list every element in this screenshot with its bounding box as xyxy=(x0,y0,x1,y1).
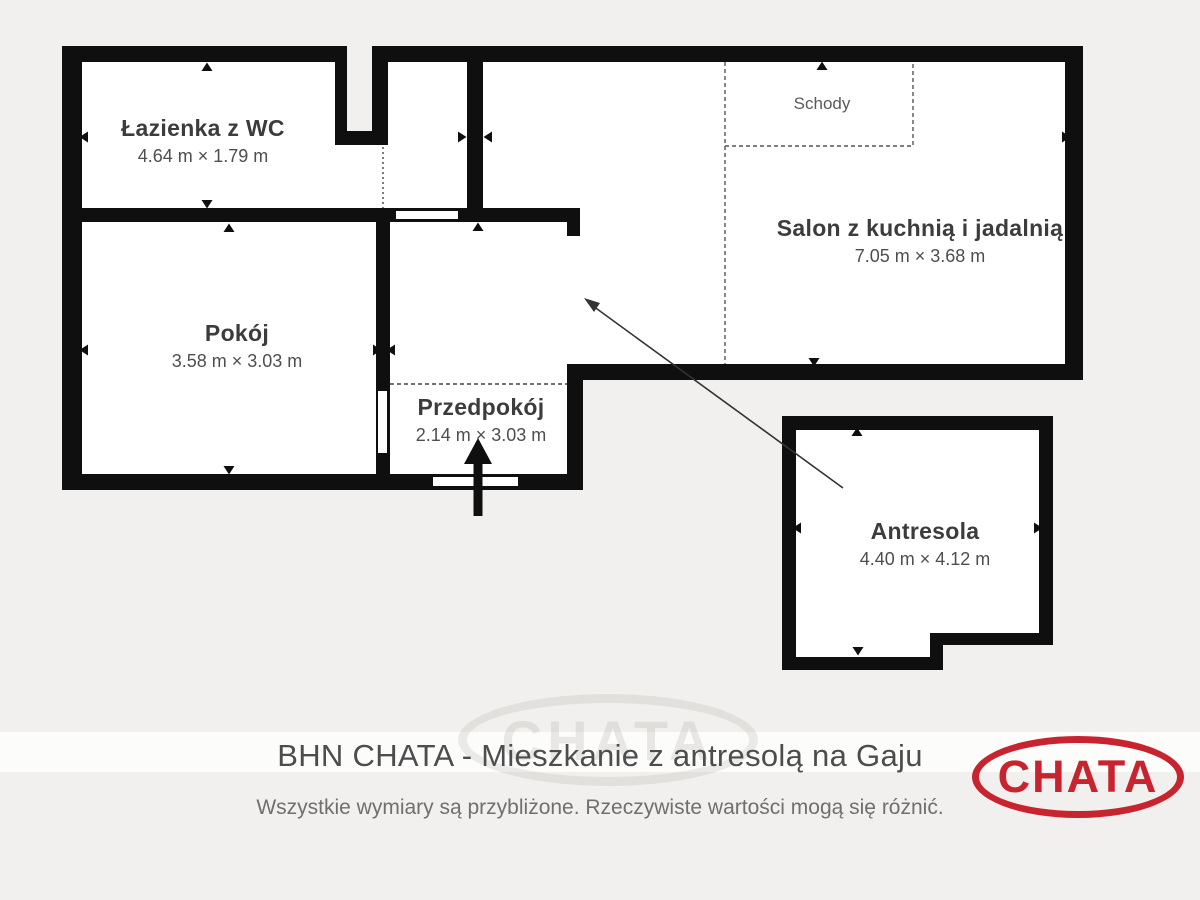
brand-logo: CHATA xyxy=(972,736,1184,818)
wall-antresola-top xyxy=(782,416,1053,430)
room-dims: 4.64 m × 1.79 m xyxy=(121,146,285,167)
door-entrance xyxy=(431,475,520,488)
room-label-przedpokoj: Przedpokój 2.14 m × 3.03 m xyxy=(416,394,547,446)
wall-top-left xyxy=(62,46,347,62)
wall-right xyxy=(1065,46,1083,380)
wall-corridor-stub xyxy=(567,208,580,236)
room-name: Pokój xyxy=(172,320,303,347)
room-name: Łazienka z WC xyxy=(121,115,285,142)
wall-left xyxy=(62,46,82,490)
room-dims: 4.40 m × 4.12 m xyxy=(860,549,991,570)
room-dims: 7.05 m × 3.68 m xyxy=(777,246,1063,267)
room-name: Salon z kuchnią i jadalnią xyxy=(777,215,1063,242)
door-lazienka xyxy=(394,209,460,221)
floor-plan-page: Łazienka z WC 4.64 m × 1.79 m Pokój 3.58… xyxy=(0,0,1200,900)
room-dims: 2.14 m × 3.03 m xyxy=(416,425,547,446)
room-label-lazienka: Łazienka z WC 4.64 m × 1.79 m xyxy=(121,115,285,167)
room-dims: 3.58 m × 3.03 m xyxy=(172,351,303,372)
door-pokoj xyxy=(376,389,389,455)
wall-antresola-right xyxy=(1039,416,1053,645)
wall-przedpokoj-right xyxy=(567,364,583,490)
room-name: Antresola xyxy=(860,518,991,545)
wall-antresola-bottom-right xyxy=(930,633,1053,645)
wall-salon-bottom xyxy=(567,364,1083,380)
niche-background xyxy=(347,46,372,136)
stairs-label: Schody xyxy=(794,94,851,114)
room-name: Przedpokój xyxy=(416,394,547,421)
wall-corridor-top xyxy=(483,208,580,222)
room-fill-corridor-pokoj xyxy=(74,208,583,490)
brand-logo-text: CHATA xyxy=(998,751,1159,803)
wall-antresola-left xyxy=(782,416,796,670)
wall-lazienka-salon-divider xyxy=(467,46,483,222)
room-label-antresola: Antresola 4.40 m × 4.12 m xyxy=(860,518,991,570)
room-label-salon: Salon z kuchnią i jadalnią 7.05 m × 3.68… xyxy=(777,215,1063,267)
room-fill-antresola-b xyxy=(790,560,938,665)
room-label-pokoj: Pokój 3.58 m × 3.03 m xyxy=(172,320,303,372)
wall-antresola-bottom-left xyxy=(782,657,942,670)
wall-niche-bottom xyxy=(335,131,388,145)
